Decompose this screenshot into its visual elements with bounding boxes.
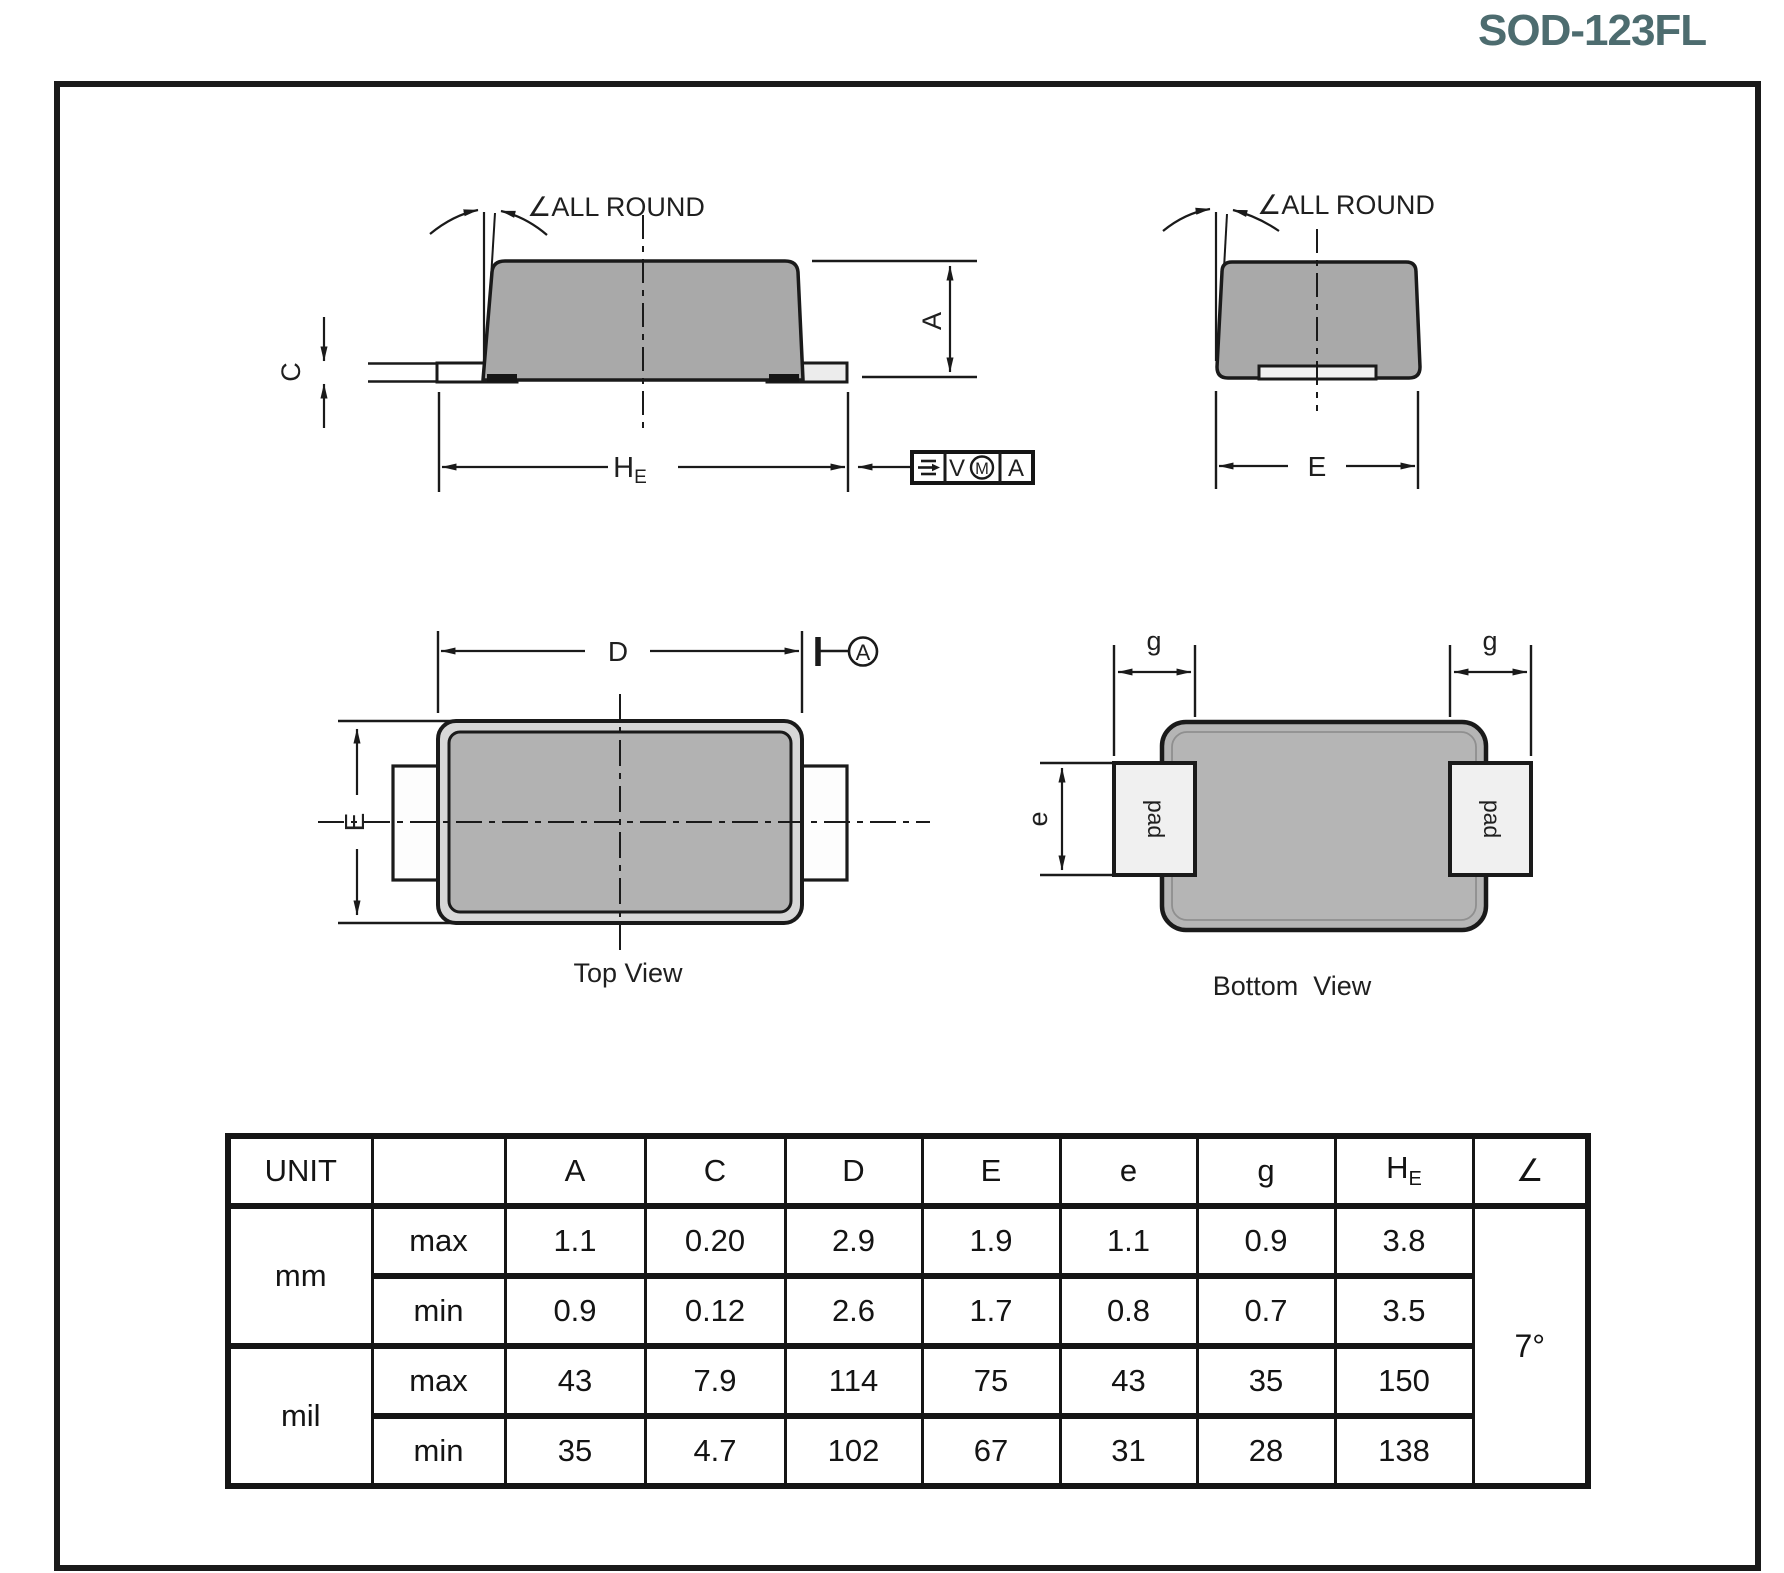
value-cell: 43 [1060, 1346, 1197, 1416]
bottom-view-caption: Bottom View [1213, 971, 1372, 1001]
he-label-base: H [613, 452, 634, 484]
value-cell: 3.8 [1335, 1206, 1473, 1276]
dimension-table: UNIT A C D E e g HE ∠ mm max 1.1 0.20 2.… [225, 1133, 1591, 1489]
value-cell: 0.9 [1197, 1206, 1335, 1276]
table-row-mm-max: mm max 1.1 0.20 2.9 1.9 1.1 0.9 3.8 7° [228, 1206, 1588, 1276]
side-angle-note: ∠ALL ROUND [527, 192, 705, 222]
unit-mil-cell: mil [228, 1346, 372, 1486]
header-a: A [505, 1136, 645, 1206]
header-g: g [1197, 1136, 1335, 1206]
c-dim-label: C [276, 362, 306, 382]
e-dim-label: E [339, 813, 370, 832]
table-row-mil-max: mil max 43 7.9 114 75 43 35 150 [228, 1346, 1588, 1416]
value-cell: 0.20 [645, 1206, 785, 1276]
value-cell: 0.8 [1060, 1276, 1197, 1346]
value-cell: 28 [1197, 1416, 1335, 1486]
value-cell: 2.9 [785, 1206, 922, 1276]
value-cell: 114 [785, 1346, 922, 1416]
value-cell: 138 [1335, 1416, 1473, 1486]
value-cell: 2.6 [785, 1276, 922, 1346]
top-view-caption: Top View [573, 958, 683, 988]
header-unit: UNIT [228, 1136, 372, 1206]
table-row-mil-min: min 35 4.7 102 67 31 28 138 [228, 1416, 1588, 1486]
fcf-tolerance-label: V [949, 455, 965, 482]
value-cell: 0.9 [505, 1276, 645, 1346]
bound-cell: max [372, 1346, 505, 1416]
body-foot-left [487, 374, 517, 382]
datum-feature-a: A [818, 637, 877, 666]
package-body-end [1217, 262, 1420, 378]
header-he-base: H [1386, 1150, 1408, 1185]
e-dim-label: e [1023, 811, 1053, 826]
value-cell: 150 [1335, 1346, 1473, 1416]
bound-cell: max [372, 1206, 505, 1276]
header-blank [372, 1136, 505, 1206]
page: { "title": "SOD-123FL", "colors": { "acc… [0, 0, 1784, 1573]
end-angle-note: ∠ALL ROUND [1257, 190, 1435, 220]
value-cell: 31 [1060, 1416, 1197, 1486]
header-he: HE [1335, 1136, 1473, 1206]
value-cell: 0.12 [645, 1276, 785, 1346]
angle-arc-left [430, 210, 478, 234]
bound-cell: min [372, 1276, 505, 1346]
fcf-datum-label: A [1008, 455, 1024, 482]
unit-mm-cell: mm [228, 1206, 372, 1346]
header-d: D [785, 1136, 922, 1206]
fcf-modifier-label: M [975, 460, 989, 478]
value-cell: 35 [505, 1416, 645, 1486]
bound-cell: min [372, 1416, 505, 1486]
he-label-sub: E [634, 467, 647, 488]
top-view: D A E Top View [318, 631, 930, 988]
value-cell: 102 [785, 1416, 922, 1486]
value-cell: 75 [922, 1346, 1060, 1416]
table-row-mm-min: min 0.9 0.12 2.6 1.7 0.8 0.7 3.5 [228, 1276, 1588, 1346]
value-cell: 43 [505, 1346, 645, 1416]
he-dim-label: HE [613, 452, 647, 488]
feature-control-frame: V M A [912, 452, 1033, 483]
angle-arc-left [1163, 209, 1210, 231]
header-e-lower: e [1060, 1136, 1197, 1206]
g-right-label: g [1482, 626, 1497, 656]
a-dim-label: A [917, 312, 947, 330]
header-e-upper: E [922, 1136, 1060, 1206]
header-c: C [645, 1136, 785, 1206]
value-cell: 1.1 [505, 1206, 645, 1276]
body-foot-right [769, 374, 799, 382]
table-header-row: UNIT A C D E e g HE ∠ [228, 1136, 1588, 1206]
header-angle: ∠ [1473, 1136, 1588, 1206]
package-body-bottom [1162, 722, 1486, 930]
pad-right-label: pad [1479, 800, 1505, 838]
value-cell: 7.9 [645, 1346, 785, 1416]
e-dim-label: E [1308, 451, 1327, 482]
value-cell: 4.7 [645, 1416, 785, 1486]
value-cell: 0.7 [1197, 1276, 1335, 1346]
value-cell: 35 [1197, 1346, 1335, 1416]
side-view: ∠ALL ROUND C A HE [276, 192, 1033, 492]
bottom-view: pad pad g g e Bottom View [1023, 626, 1531, 1001]
value-cell: 1.7 [922, 1276, 1060, 1346]
value-cell: 3.5 [1335, 1276, 1473, 1346]
d-dim-label: D [608, 636, 628, 667]
value-cell: 1.9 [922, 1206, 1060, 1276]
end-view: ∠ALL ROUND E [1163, 190, 1435, 489]
value-cell: 1.1 [1060, 1206, 1197, 1276]
angle-value-cell: 7° [1473, 1206, 1588, 1486]
c-extension-lines [368, 364, 436, 382]
header-he-sub: E [1409, 1169, 1422, 1191]
pad-left-label: pad [1143, 800, 1169, 838]
g-left-label: g [1146, 626, 1161, 656]
value-cell: 67 [922, 1416, 1060, 1486]
datum-label: A [856, 640, 871, 665]
